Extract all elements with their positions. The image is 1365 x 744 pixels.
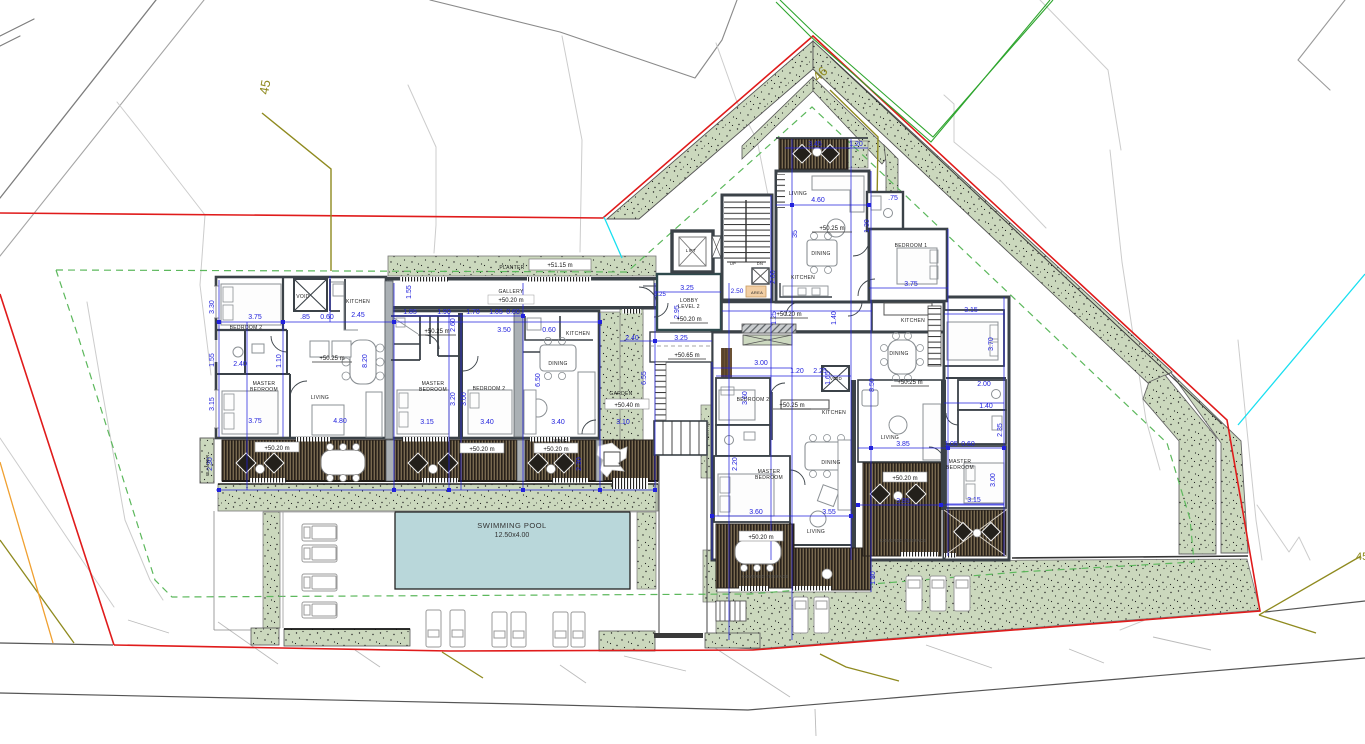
svg-text:KITCHEN: KITCHEN xyxy=(791,275,815,281)
svg-text:3.55: 3.55 xyxy=(822,509,836,516)
svg-text:2.30: 2.30 xyxy=(576,457,583,471)
svg-text:3.50: 3.50 xyxy=(497,327,511,334)
svg-text:45: 45 xyxy=(1356,551,1365,563)
svg-text:LIVING: LIVING xyxy=(789,191,807,197)
svg-text:+50.20 m: +50.20 m xyxy=(543,447,568,453)
svg-text:LIFT: LIFT xyxy=(686,248,696,253)
svg-text:1.90: 1.90 xyxy=(437,309,451,316)
svg-text:3.85: 3.85 xyxy=(896,498,910,505)
svg-text:PLANTER: PLANTER xyxy=(705,421,710,440)
svg-text:3.45: 3.45 xyxy=(808,141,822,148)
svg-text:DINING: DINING xyxy=(811,251,830,257)
svg-text:1.20: 1.20 xyxy=(790,368,804,375)
svg-text:BEDROOM: BEDROOM xyxy=(755,475,783,481)
svg-text:PLANTER: PLANTER xyxy=(499,265,524,271)
svg-text:KITCHEN: KITCHEN xyxy=(822,410,846,416)
svg-text:+50.20 m: +50.20 m xyxy=(264,446,289,452)
svg-text:6.55: 6.55 xyxy=(641,371,648,385)
svg-text:VOID: VOID xyxy=(830,376,843,381)
svg-text:3.25: 3.25 xyxy=(654,292,666,298)
svg-text:+50.25 m: +50.25 m xyxy=(819,226,844,232)
svg-text:1.40: 1.40 xyxy=(979,403,993,410)
svg-text:3.20: 3.20 xyxy=(450,392,457,406)
svg-text:0.60: 0.60 xyxy=(320,314,334,321)
svg-text:3.25: 3.25 xyxy=(680,285,694,292)
svg-text:BEDROOM: BEDROOM xyxy=(419,387,447,393)
svg-text:3.85: 3.85 xyxy=(896,441,910,448)
svg-text:+50.25 m: +50.25 m xyxy=(779,403,804,409)
svg-text:4.60: 4.60 xyxy=(811,197,825,204)
svg-text:LEVEL 2: LEVEL 2 xyxy=(678,304,700,310)
svg-text:45: 45 xyxy=(256,79,273,96)
svg-text:GALLERY: GALLERY xyxy=(498,289,523,295)
svg-text:AREA: AREA xyxy=(751,290,763,295)
svg-text:2.00: 2.00 xyxy=(770,270,777,284)
svg-text:3.10: 3.10 xyxy=(616,419,630,426)
svg-text:3.00: 3.00 xyxy=(990,473,997,487)
svg-text:3.70: 3.70 xyxy=(988,337,995,351)
svg-text:+50.65 m: +50.65 m xyxy=(674,353,699,359)
svg-text:1.10: 1.10 xyxy=(276,354,283,368)
svg-text:1.85: 1.85 xyxy=(403,309,417,316)
svg-text:+50.20 m: +50.20 m xyxy=(498,298,523,304)
svg-text:3.15: 3.15 xyxy=(420,419,434,426)
svg-text:BEDROOM 2: BEDROOM 2 xyxy=(737,397,770,403)
svg-text:BEDROOM 1: BEDROOM 1 xyxy=(895,243,928,249)
svg-text:DN: DN xyxy=(757,261,763,266)
svg-text:8.50: 8.50 xyxy=(869,378,876,392)
svg-text:UP: UP xyxy=(730,261,736,266)
svg-text:2.45: 2.45 xyxy=(351,312,365,319)
svg-text:COVERED TERRACE: COVERED TERRACE xyxy=(742,574,789,579)
svg-text:+50.20 m: +50.20 m xyxy=(469,447,494,453)
svg-text:3.25: 3.25 xyxy=(674,335,688,342)
svg-text:1.05: 1.05 xyxy=(489,309,503,316)
svg-text:KITCHEN: KITCHEN xyxy=(901,318,925,324)
svg-text:+51.15 m: +51.15 m xyxy=(547,263,572,269)
svg-text:1.55: 1.55 xyxy=(209,353,216,367)
svg-text:4.80: 4.80 xyxy=(333,418,347,425)
svg-text:35: 35 xyxy=(792,230,799,238)
svg-text:BEDROOM: BEDROOM xyxy=(946,465,974,471)
svg-text:PLANTER: PLANTER xyxy=(205,454,210,476)
svg-text:2.20: 2.20 xyxy=(732,457,739,471)
svg-text:+50.20 m: +50.20 m xyxy=(676,317,701,323)
svg-text:LIVING: LIVING xyxy=(311,395,329,401)
svg-text:+50.25 m: +50.25 m xyxy=(319,356,344,362)
svg-text:3.15: 3.15 xyxy=(209,397,216,411)
svg-text:BEDROOM 2: BEDROOM 2 xyxy=(473,386,506,392)
svg-text:KITCHEN: KITCHEN xyxy=(346,299,370,305)
svg-text:3.15: 3.15 xyxy=(964,307,978,314)
svg-text:0.60: 0.60 xyxy=(506,309,520,316)
svg-text:2.60: 2.60 xyxy=(450,318,457,332)
svg-text:+50.25 m: +50.25 m xyxy=(424,329,449,335)
svg-text:KITCHEN: KITCHEN xyxy=(566,331,590,337)
svg-text:2.00: 2.00 xyxy=(977,381,991,388)
svg-text:6.50: 6.50 xyxy=(535,373,542,387)
svg-text:8.20: 8.20 xyxy=(362,354,369,368)
svg-text:DINING: DINING xyxy=(548,361,567,367)
svg-text:LIVING: LIVING xyxy=(881,435,899,441)
svg-text:SWIMMING POOL: SWIMMING POOL xyxy=(477,521,546,530)
svg-text:.75: .75 xyxy=(888,195,898,202)
svg-text:+50.20 m: +50.20 m xyxy=(776,312,801,318)
svg-text:3.75: 3.75 xyxy=(248,418,262,425)
svg-text:1.40: 1.40 xyxy=(831,311,838,325)
svg-text:3.60: 3.60 xyxy=(749,509,763,516)
svg-text:COVERED TERRACE: COVERED TERRACE xyxy=(880,538,927,543)
svg-text:1.80: 1.80 xyxy=(870,571,877,585)
svg-text:3.75: 3.75 xyxy=(248,314,262,321)
svg-text:3.15: 3.15 xyxy=(967,497,981,504)
svg-text:1.70: 1.70 xyxy=(466,309,480,316)
svg-text:GARDEN: GARDEN xyxy=(609,391,632,397)
svg-text:+50.20 m: +50.20 m xyxy=(892,476,917,482)
svg-text:1.20: 1.20 xyxy=(849,141,863,148)
svg-text:3.00: 3.00 xyxy=(754,360,768,367)
svg-text:3.30: 3.30 xyxy=(209,300,216,314)
svg-text:1.55: 1.55 xyxy=(406,285,413,299)
svg-text:3.75: 3.75 xyxy=(904,281,918,288)
svg-text:BEDROOM 2: BEDROOM 2 xyxy=(230,325,263,331)
svg-text:+50.40 m: +50.40 m xyxy=(614,403,639,409)
svg-text:+50.25 m: +50.25 m xyxy=(897,380,922,386)
svg-text:2.40: 2.40 xyxy=(233,361,247,368)
svg-text:2.50: 2.50 xyxy=(731,288,744,295)
svg-text:1.30: 1.30 xyxy=(864,219,871,233)
svg-text:2.35: 2.35 xyxy=(997,423,1004,437)
svg-text:DINING: DINING xyxy=(889,351,908,357)
svg-text:+50.20 m: +50.20 m xyxy=(748,535,773,541)
svg-text:VOID: VOID xyxy=(296,294,310,300)
svg-text:0.60: 0.60 xyxy=(961,441,975,448)
svg-text:3.40: 3.40 xyxy=(551,419,565,426)
svg-text:BEDROOM: BEDROOM xyxy=(250,387,278,393)
svg-text:0.60: 0.60 xyxy=(542,327,556,334)
svg-text:.85: .85 xyxy=(300,314,310,321)
svg-text:2.40: 2.40 xyxy=(625,335,639,342)
svg-text:DINING: DINING xyxy=(821,460,840,466)
svg-text:LIVING: LIVING xyxy=(807,529,825,535)
svg-text:3.40: 3.40 xyxy=(480,419,494,426)
svg-text:3.00: 3.00 xyxy=(461,392,468,406)
svg-text:12.50x4.00: 12.50x4.00 xyxy=(495,532,530,539)
